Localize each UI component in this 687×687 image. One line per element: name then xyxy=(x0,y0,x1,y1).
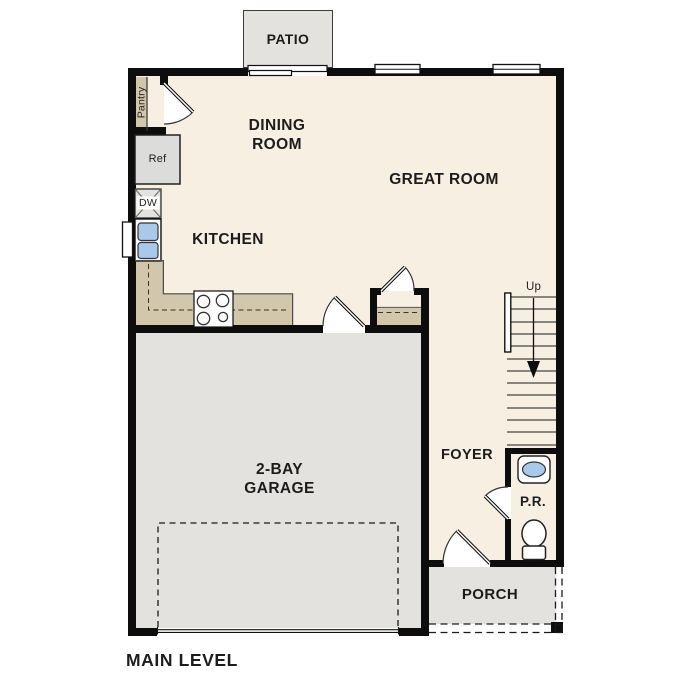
porch-label: PORCH xyxy=(450,586,530,604)
wall-top-right xyxy=(327,68,564,76)
wall-garage-top-right xyxy=(365,325,429,333)
kitchen-counter-horizontal xyxy=(135,294,293,325)
kitchen-label: KITCHEN xyxy=(168,231,288,250)
floor-plan: PATIO DINING ROOM GREAT ROOM KITCHEN 2-B… xyxy=(0,0,687,687)
refrigerator-label: Ref xyxy=(135,153,180,166)
wall-closet-left xyxy=(370,295,377,325)
foyer-floor-area xyxy=(429,448,505,560)
stub-pantry-bottom xyxy=(136,127,166,135)
garage-label: 2-BAY GARAGE xyxy=(229,461,330,499)
main-floor-area xyxy=(136,76,556,325)
wall-powder-left-lower xyxy=(505,519,511,567)
wall-right-exterior xyxy=(556,68,564,567)
garage-door xyxy=(157,627,399,635)
patio-label: PATIO xyxy=(243,31,333,48)
stairs-up-label: Up xyxy=(518,280,549,294)
wall-top-left xyxy=(128,68,248,76)
plan-title: MAIN LEVEL xyxy=(126,650,306,671)
wall-garage-top-left xyxy=(128,325,323,333)
closet-shelf xyxy=(377,307,421,325)
wall-stairs-bottom xyxy=(505,448,564,454)
dining-room-label: DINING ROOM xyxy=(231,117,323,155)
foyer-label: FOYER xyxy=(427,447,507,465)
wall-foyer-bottom-left xyxy=(429,560,444,567)
stub-closet-top-right xyxy=(414,288,429,295)
stub-pantry-top xyxy=(160,74,168,85)
hall-floor-area xyxy=(429,325,556,448)
great-room-label: GREAT ROOM xyxy=(364,171,524,190)
powder-room-label: P.R. xyxy=(511,494,555,510)
wall-garage-right xyxy=(421,295,429,636)
wall-garage-bottom-right xyxy=(399,628,429,636)
wall-foyer-bottom-right xyxy=(490,560,564,567)
dishwasher-label: DW xyxy=(135,197,161,210)
stub-closet-top-left xyxy=(370,288,381,295)
pantry-label: Pantry xyxy=(136,82,149,124)
wall-garage-bottom-left xyxy=(128,628,157,636)
porch-post xyxy=(551,622,563,633)
